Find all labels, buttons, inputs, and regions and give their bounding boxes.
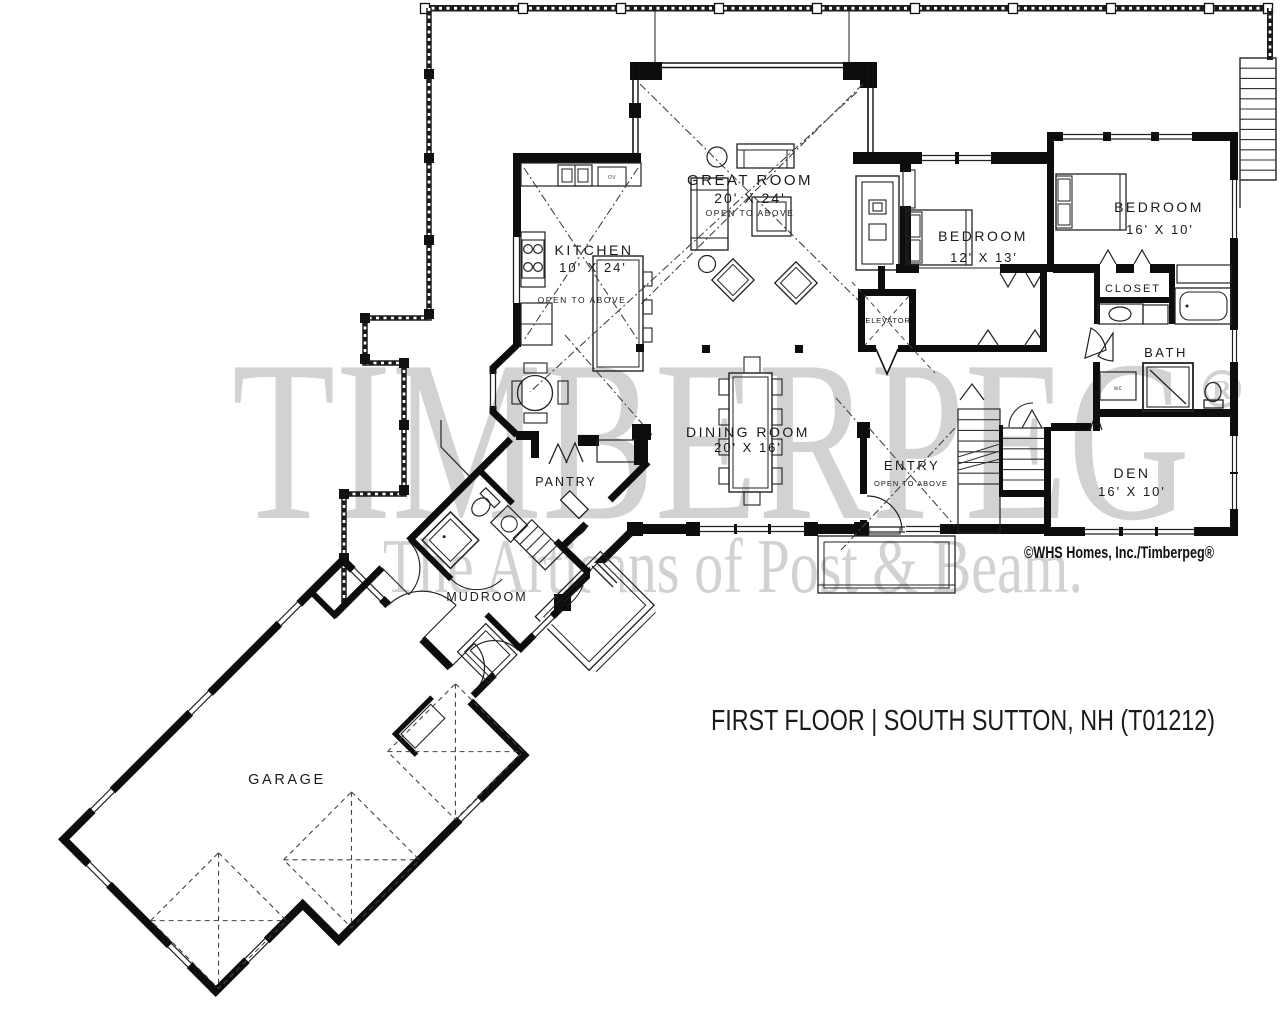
svg-text:GARAGE: GARAGE	[248, 772, 326, 788]
svg-text:ELEVATOR: ELEVATOR	[865, 316, 910, 325]
svg-text:FIRST FLOOR | SOUTH SUTTON, NH: FIRST FLOOR | SOUTH SUTTON, NH (T01212)	[711, 705, 1215, 737]
svg-text:GREAT ROOM: GREAT ROOM	[687, 172, 813, 189]
svg-text:OPEN TO ABOVE: OPEN TO ABOVE	[706, 208, 795, 218]
svg-text:ENTRY: ENTRY	[884, 458, 940, 473]
svg-text:OV: OV	[608, 175, 616, 181]
svg-text:OPEN TO ABOVE: OPEN TO ABOVE	[874, 479, 948, 488]
svg-text:BATH: BATH	[1144, 345, 1188, 360]
svg-text:16' X 10': 16' X 10'	[1126, 222, 1194, 237]
svg-text:BEDROOM: BEDROOM	[1114, 199, 1204, 215]
svg-text:DEN: DEN	[1113, 465, 1150, 481]
svg-text:BEDROOM: BEDROOM	[938, 228, 1028, 244]
svg-text:©WHS Homes, Inc./Timberpeg®: ©WHS Homes, Inc./Timberpeg®	[1024, 543, 1214, 562]
svg-text:20' X 24': 20' X 24'	[714, 190, 786, 206]
svg-text:12' X 13': 12' X 13'	[950, 250, 1018, 265]
svg-text:16' X 10': 16' X 10'	[1098, 484, 1166, 499]
svg-text:KITCHEN: KITCHEN	[555, 242, 634, 258]
svg-text:10' X 24': 10' X 24'	[559, 260, 627, 275]
svg-text:OPEN TO ABOVE: OPEN TO ABOVE	[538, 295, 627, 305]
svg-text:DINING ROOM: DINING ROOM	[686, 424, 810, 440]
svg-text:PANTRY: PANTRY	[535, 475, 597, 489]
svg-text:CLOSET: CLOSET	[1105, 283, 1161, 295]
svg-text:20' X 16': 20' X 16'	[714, 440, 782, 455]
svg-text:MUDROOM: MUDROOM	[446, 590, 527, 604]
svg-text:wc: wc	[1113, 386, 1122, 392]
